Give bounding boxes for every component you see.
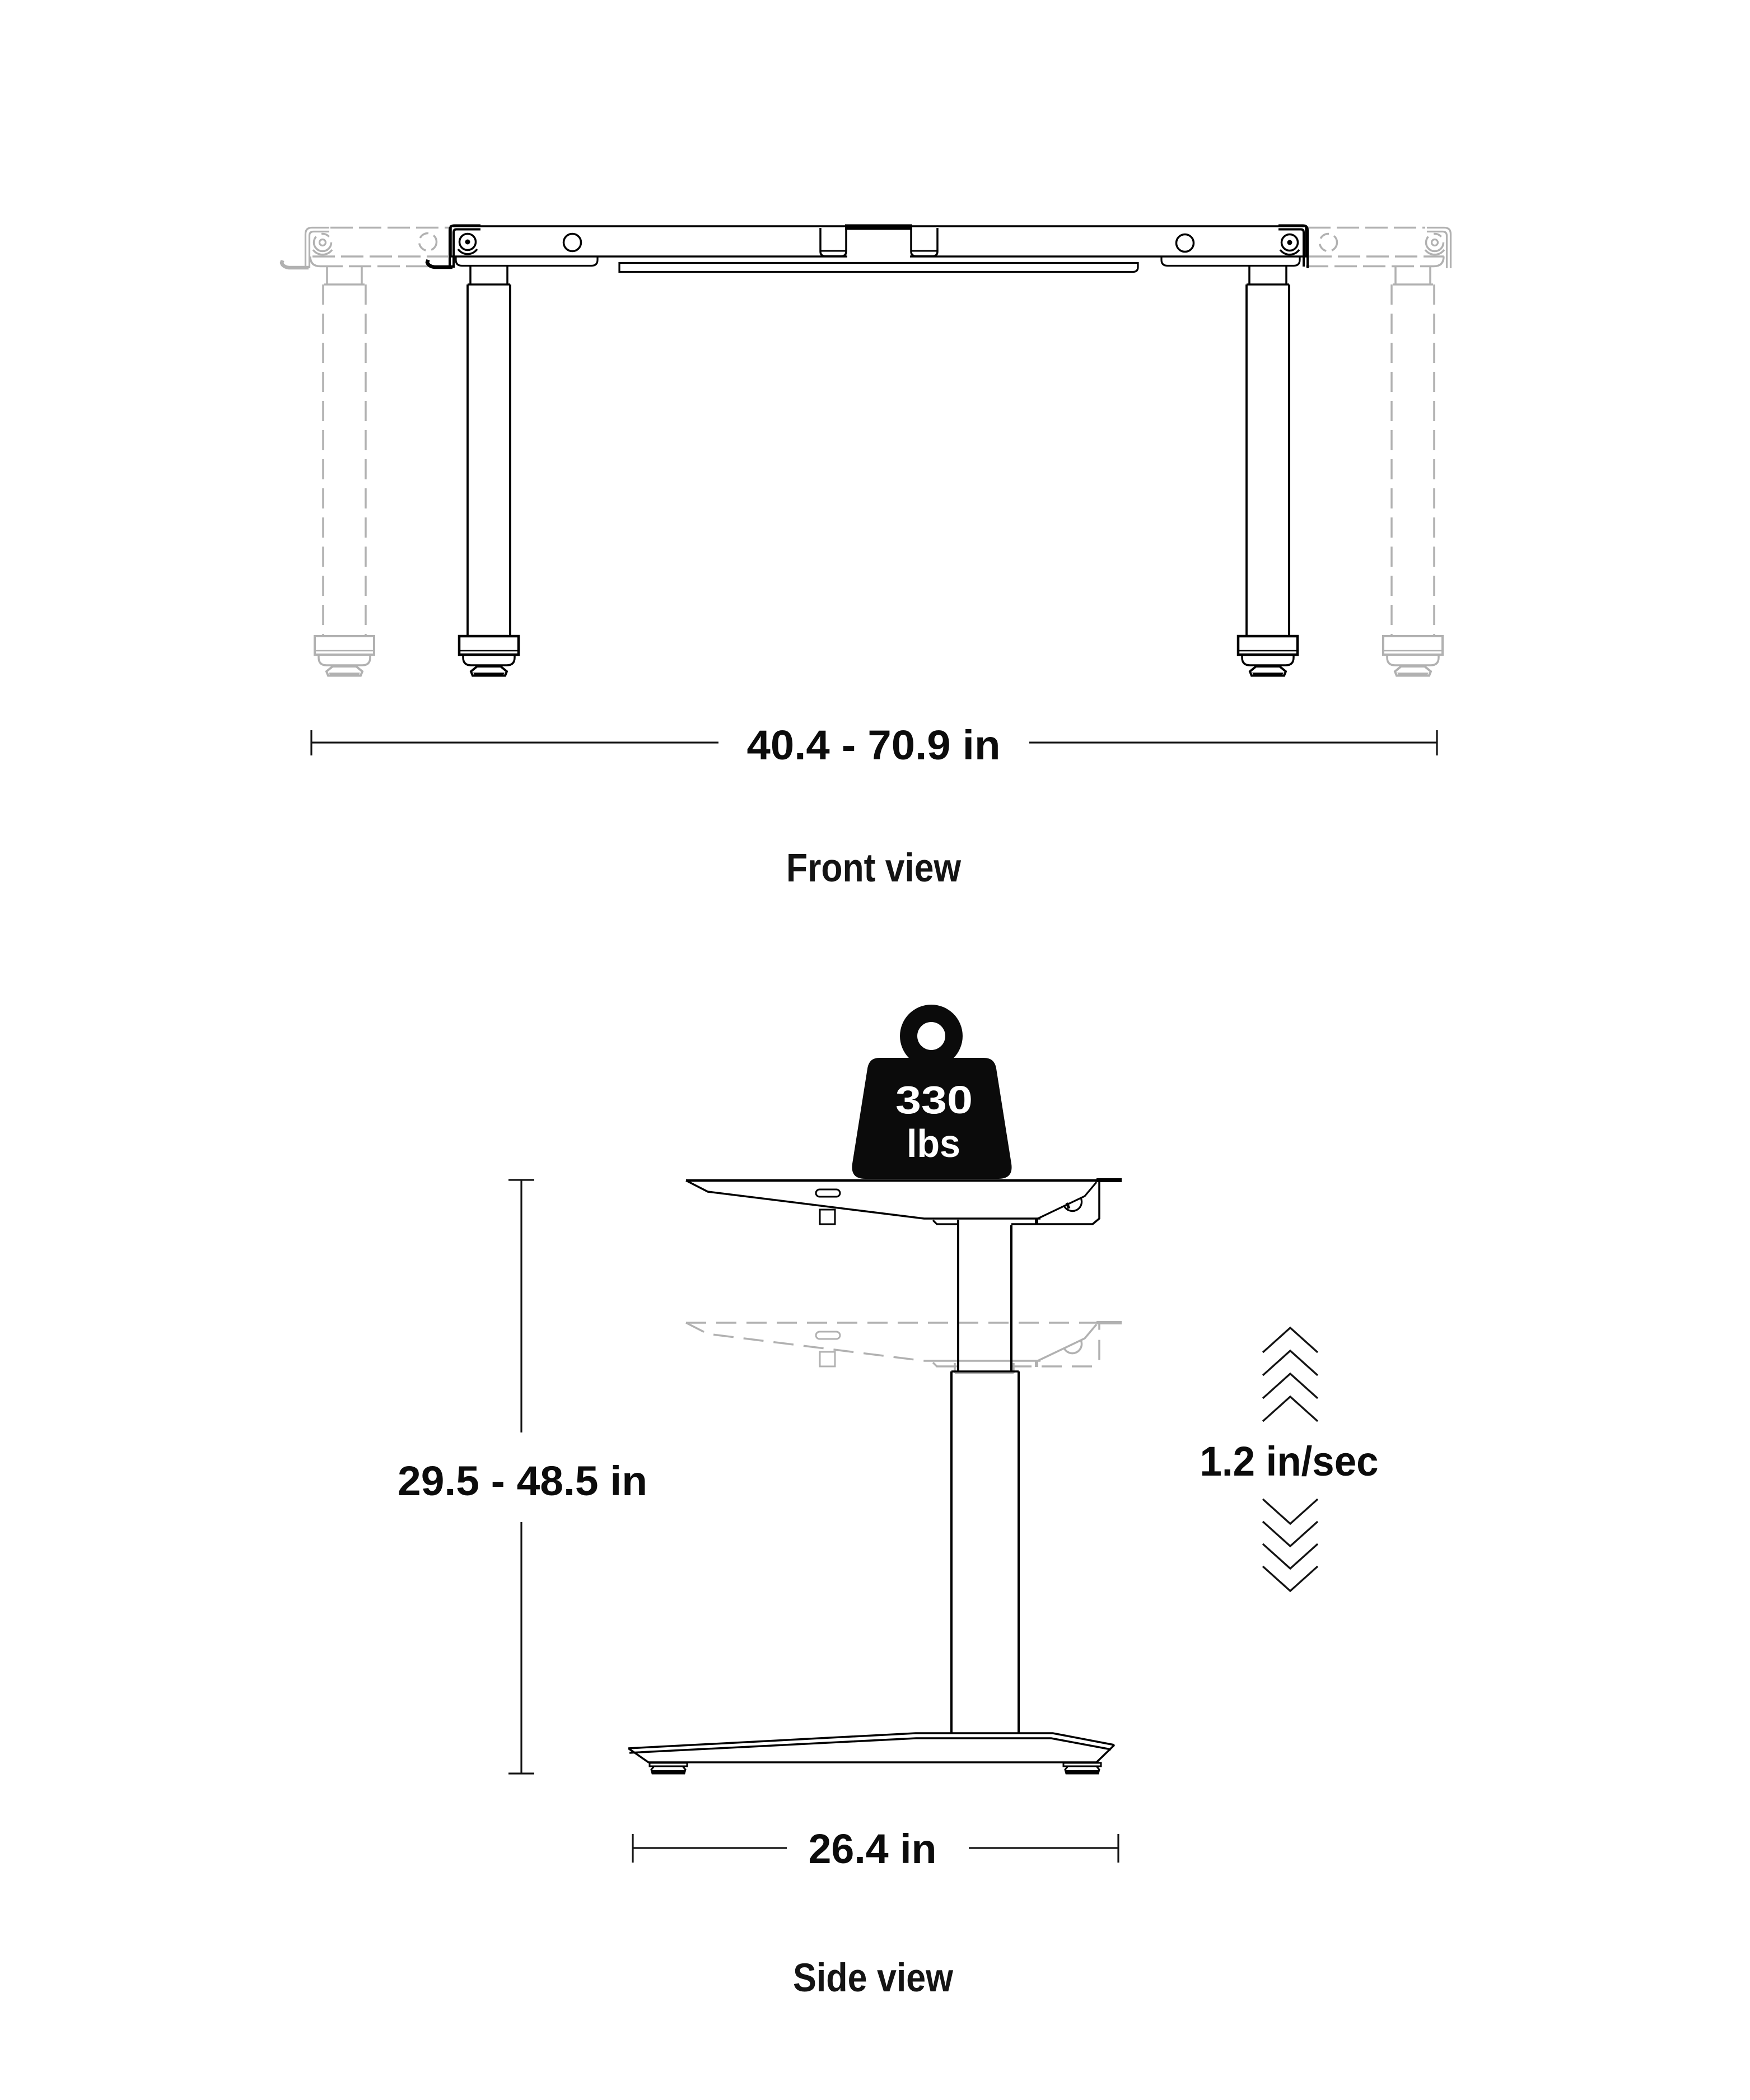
svg-text:330: 330 — [895, 1078, 973, 1122]
svg-text:26.4 in: 26.4 in — [809, 1826, 937, 1872]
svg-text:40.4 - 70.9 in: 40.4 - 70.9 in — [747, 722, 1001, 768]
svg-text:lbs: lbs — [907, 1122, 960, 1165]
svg-text:1.2 in/sec: 1.2 in/sec — [1200, 1438, 1379, 1485]
svg-text:Side view: Side view — [793, 1956, 954, 2000]
svg-text:29.5 - 48.5 in: 29.5 - 48.5 in — [398, 1458, 647, 1504]
svg-text:Front view: Front view — [786, 846, 962, 890]
